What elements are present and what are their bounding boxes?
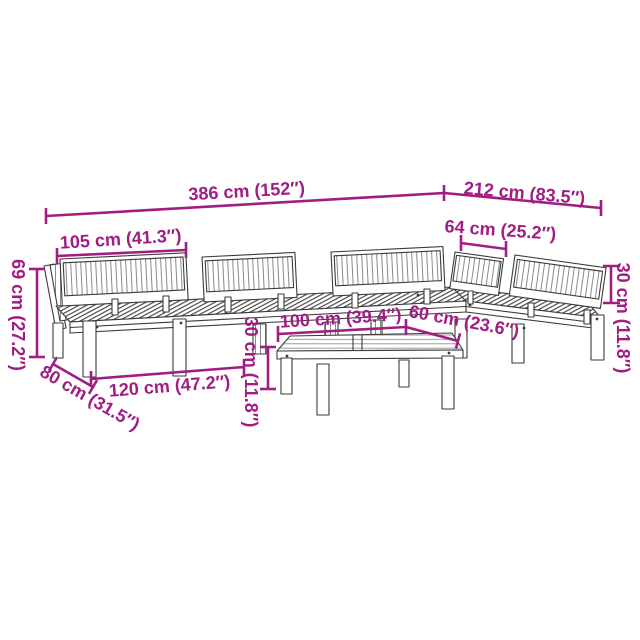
backrest-post [468, 291, 473, 304]
backrest-post [225, 297, 231, 312]
dim-total-height-label: 69 cm (27.2″) [8, 259, 28, 371]
backrest-post [352, 293, 358, 308]
backrest-post [528, 303, 534, 317]
backrest-post [424, 289, 430, 304]
backrest-post [112, 299, 118, 315]
coffee-table [277, 333, 463, 415]
backrest-post [278, 294, 284, 309]
dimension-diagram: 386 cm (152″) 212 cm (83.5″) 105 cm (41.… [0, 0, 640, 640]
dim-side-length-label: 212 cm (83.5″) [463, 178, 586, 209]
dim-total-length-label: 386 cm (152″) [188, 178, 306, 205]
dim-backrest-width-label: 105 cm (41.3″) [59, 225, 182, 252]
dim-table-height-label: 30 cm (11.8″) [241, 317, 261, 428]
dim-backrest-height-label: 30 cm (11.8″) [613, 263, 633, 374]
diagram-svg: 386 cm (152″) 212 cm (83.5″) 105 cm (41.… [0, 0, 640, 640]
dim-total-height [29, 269, 45, 357]
backrest-post [163, 296, 169, 312]
backrest-panel-4 [450, 252, 504, 295]
backrest-post [584, 310, 590, 324]
